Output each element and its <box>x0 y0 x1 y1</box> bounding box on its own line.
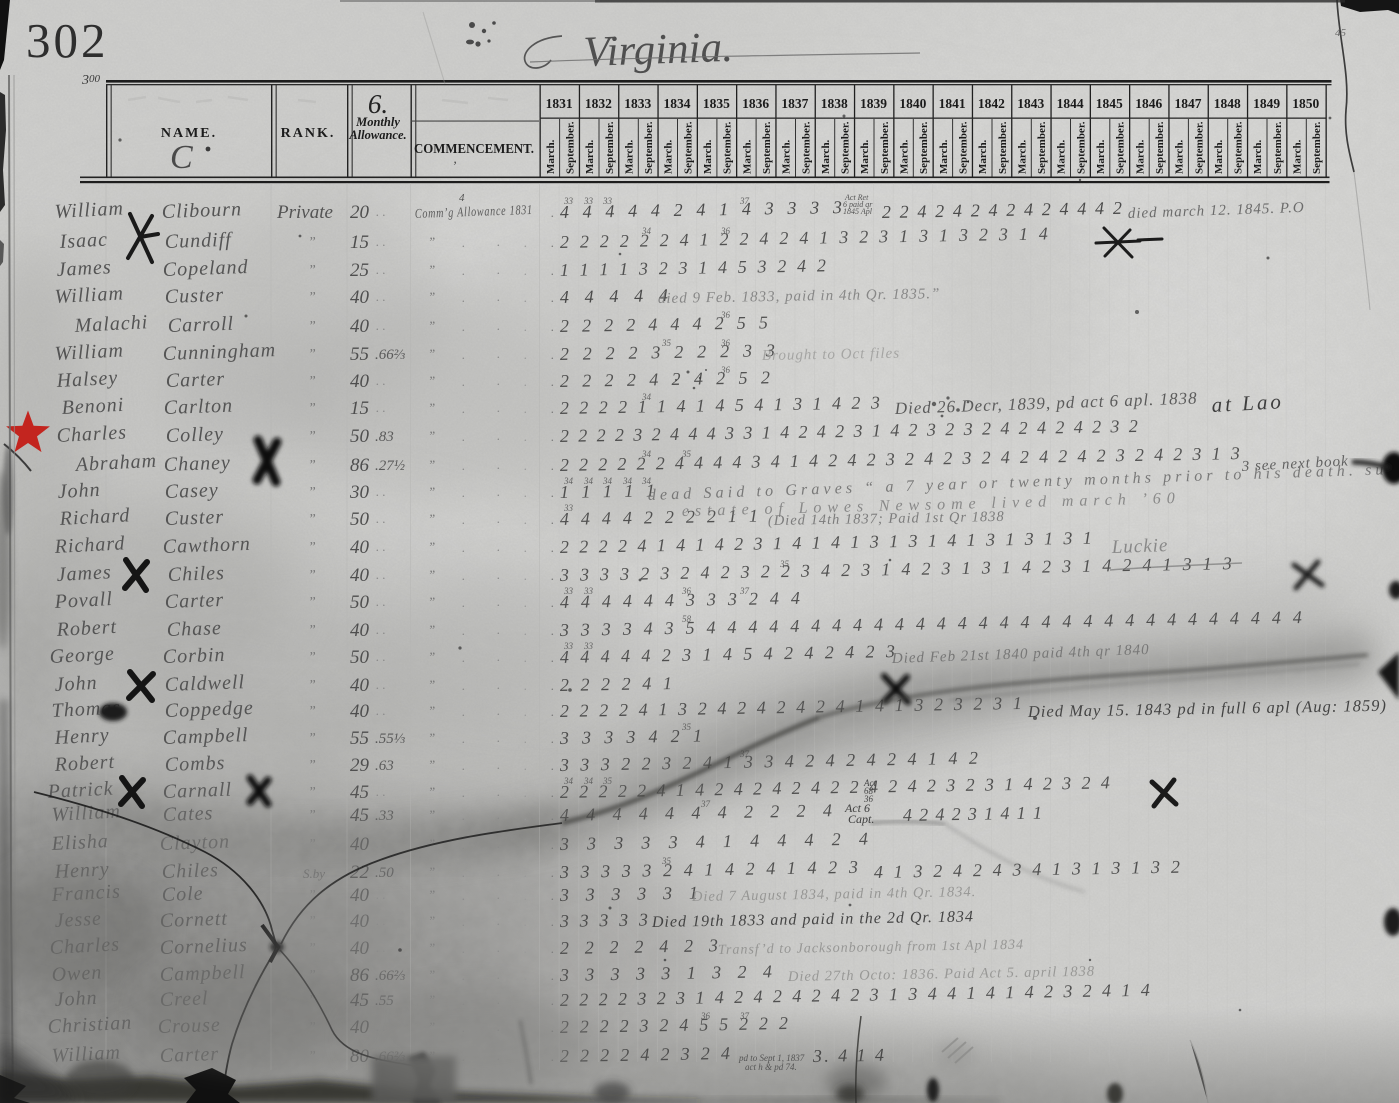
svg-text:.: . <box>497 373 500 388</box>
svg-text:.: . <box>462 429 465 444</box>
svg-text:Halsey: Halsey <box>55 367 119 392</box>
svg-text:.: . <box>462 347 465 362</box>
svg-text:.: . <box>462 458 465 473</box>
svg-text:Luckie: Luckie <box>1110 535 1168 558</box>
svg-text:John: John <box>57 479 101 503</box>
svg-text:50: 50 <box>350 509 370 530</box>
svg-text:.: . <box>462 540 465 555</box>
svg-text:RANK.: RANK. <box>281 126 336 141</box>
svg-text:at Lao: at Lao <box>1211 389 1284 417</box>
svg-text:34: 34 <box>622 476 633 486</box>
svg-text:.: . <box>497 346 500 361</box>
svg-text:”: ” <box>428 457 435 472</box>
svg-text:.: . <box>551 458 554 473</box>
svg-text:.: . <box>462 374 465 389</box>
svg-text:34: 34 <box>641 226 652 236</box>
svg-text:March.: March. <box>938 139 950 174</box>
svg-text:.: . <box>551 429 554 444</box>
svg-text:40: 40 <box>350 316 370 337</box>
svg-text:4: 4 <box>459 192 465 204</box>
svg-text:2 2 4 2 4 2 4 2 4 2 4 4 4 2: 2 2 4 2 4 2 4 2 4 2 4 4 4 2 <box>882 198 1122 222</box>
svg-text:March.: March. <box>702 139 714 174</box>
svg-text:March.: March. <box>1213 139 1225 174</box>
svg-text:1840: 1840 <box>899 96 926 111</box>
svg-text:September.: September. <box>682 121 694 174</box>
svg-text:.: . <box>462 401 465 416</box>
svg-text:. .: . . <box>376 373 386 388</box>
svg-text:September.: September. <box>722 121 734 174</box>
svg-text:”: ” <box>428 373 435 388</box>
svg-text:September.: September. <box>565 121 577 174</box>
svg-text:Allowance.: Allowance. <box>348 128 406 142</box>
svg-text:March.: March. <box>1292 139 1304 174</box>
svg-text:35: 35 <box>681 449 692 459</box>
svg-text:”: ” <box>308 540 316 555</box>
svg-text:.: . <box>462 263 465 278</box>
svg-text:.: . <box>524 401 527 416</box>
svg-text:September.: September. <box>1233 121 1245 174</box>
svg-text:”: ” <box>428 234 435 249</box>
svg-text:1847: 1847 <box>1175 96 1202 111</box>
svg-text:March.: March. <box>1174 139 1186 174</box>
svg-text:Carroll: Carroll <box>167 313 234 337</box>
svg-text:4 4 4 4 4: 4 4 4 4 4 <box>560 285 668 307</box>
svg-text:”: ” <box>428 400 435 415</box>
svg-text:”: ” <box>308 263 316 278</box>
svg-text:Abraham: Abraham <box>73 450 157 476</box>
svg-text:1841: 1841 <box>939 96 966 111</box>
svg-text:.: . <box>551 485 554 500</box>
svg-text:. .: . . <box>376 234 386 249</box>
svg-text:”: ” <box>308 458 316 473</box>
svg-text:Malachi: Malachi <box>73 311 149 337</box>
svg-text:15: 15 <box>350 232 369 253</box>
svg-text:September.: September. <box>1115 121 1127 174</box>
svg-text:March.: March. <box>1056 139 1068 174</box>
svg-text:1846: 1846 <box>1135 96 1162 111</box>
svg-text:William: William <box>54 339 124 365</box>
svg-text:Richard: Richard <box>58 504 131 530</box>
svg-text:. .: . . <box>376 400 386 415</box>
svg-text:Custer: Custer <box>164 506 224 530</box>
svg-text:20: 20 <box>350 202 370 223</box>
svg-text:.: . <box>497 428 500 443</box>
svg-text:.: . <box>551 374 554 389</box>
svg-text:302: 302 <box>26 13 109 68</box>
svg-text:Colley: Colley <box>165 423 224 447</box>
svg-text:.: . <box>462 319 465 334</box>
svg-text:September.: September. <box>958 121 970 174</box>
svg-text:September.: September. <box>1311 121 1323 174</box>
svg-text:September.: September. <box>643 121 655 174</box>
svg-text:33: 33 <box>563 196 574 206</box>
svg-text:4 4 4 4 2 2 2 2 1 1: 4 4 4 4 2 2 2 2 1 1 <box>560 506 758 529</box>
svg-text:. .: . . <box>376 318 386 333</box>
svg-text:34: 34 <box>641 392 652 402</box>
svg-text:”: ” <box>308 290 316 305</box>
svg-text:1832: 1832 <box>585 96 612 111</box>
svg-text:.: . <box>551 347 554 362</box>
svg-text:. .: . . <box>376 204 386 219</box>
svg-text:Copeland: Copeland <box>162 256 248 281</box>
svg-text:1842: 1842 <box>978 96 1005 111</box>
svg-text:”: ” <box>428 346 435 361</box>
svg-text:34: 34 <box>583 476 594 486</box>
svg-text:.: . <box>524 512 527 527</box>
svg-text:September.: September. <box>918 121 930 174</box>
svg-text:1844: 1844 <box>1057 96 1084 111</box>
svg-text:. .: . . <box>376 484 386 499</box>
svg-text:30: 30 <box>349 482 370 503</box>
svg-text:.: . <box>524 540 527 555</box>
svg-text:September.: September. <box>1154 121 1166 174</box>
svg-text:55: 55 <box>350 344 369 365</box>
svg-text:March.: March. <box>663 139 675 174</box>
svg-text:.: . <box>462 235 465 250</box>
svg-text:September.: September. <box>1193 121 1205 174</box>
svg-text:.: . <box>551 540 554 555</box>
svg-text:.: . <box>462 485 465 500</box>
svg-text:Private: Private <box>276 202 333 223</box>
svg-text:”: ” <box>308 401 316 416</box>
svg-text:Clibourn: Clibourn <box>161 198 242 223</box>
svg-text:. .: . . <box>376 289 386 304</box>
svg-text:Benoni: Benoni <box>61 394 125 419</box>
svg-text:. .: . . <box>376 511 386 526</box>
svg-text:33: 33 <box>563 503 574 513</box>
svg-text:36: 36 <box>720 365 731 375</box>
svg-text:March.: March. <box>859 139 871 174</box>
svg-text:.: . <box>497 400 500 415</box>
svg-text:. .: . . <box>376 539 386 554</box>
svg-text:33: 33 <box>602 196 613 206</box>
svg-text:Act 6Capt.: Act 6Capt. <box>844 801 874 826</box>
svg-text:.: . <box>497 289 500 304</box>
svg-text:1834: 1834 <box>664 96 691 111</box>
svg-text:”: ” <box>428 428 435 443</box>
svg-text:September.: September. <box>1075 121 1087 174</box>
svg-text:March.: March. <box>623 139 635 174</box>
svg-text:.: . <box>551 290 554 305</box>
svg-text:”: ” <box>308 235 316 250</box>
svg-text:. .: . . <box>376 262 386 277</box>
svg-text:”: ” <box>428 262 435 277</box>
svg-text:.: . <box>551 205 554 220</box>
svg-text:.: . <box>551 235 554 250</box>
svg-text:.: . <box>497 318 500 333</box>
svg-text:1831: 1831 <box>546 96 573 111</box>
svg-text:.: . <box>462 512 465 527</box>
svg-text:James: James <box>56 256 112 281</box>
svg-text:September.: September. <box>840 121 852 174</box>
svg-text:March.: March. <box>741 139 753 174</box>
svg-text:45: 45 <box>1335 27 1347 39</box>
svg-text:”: ” <box>428 511 435 526</box>
svg-text:1845: 1845 <box>1096 96 1123 111</box>
svg-text:.: . <box>497 511 500 526</box>
svg-text:Virginia.: Virginia. <box>583 24 734 76</box>
svg-text:Chaney: Chaney <box>163 452 231 476</box>
svg-text:Casey: Casey <box>164 479 219 503</box>
svg-text:.: . <box>524 319 527 334</box>
svg-text:25: 25 <box>350 260 369 281</box>
svg-text:”: ” <box>308 347 316 362</box>
svg-text:March.: March. <box>1095 139 1107 174</box>
svg-text:1839: 1839 <box>860 96 887 111</box>
svg-text:1837: 1837 <box>781 96 808 111</box>
svg-text:.: . <box>524 235 527 250</box>
svg-text:86: 86 <box>350 455 370 476</box>
svg-text:Cawthorn: Cawthorn <box>162 533 251 558</box>
svg-text:.: . <box>524 485 527 500</box>
svg-text:1848: 1848 <box>1214 96 1241 111</box>
svg-text:”: ” <box>308 512 316 527</box>
svg-text:September.: September. <box>604 121 616 174</box>
svg-text:.: . <box>462 290 465 305</box>
svg-text:September.: September. <box>1272 121 1284 174</box>
svg-text:”: ” <box>308 374 316 389</box>
svg-text:September.: September. <box>761 121 773 174</box>
svg-text:Cundiff: Cundiff <box>164 229 233 253</box>
svg-text:37: 37 <box>739 196 750 206</box>
svg-text:34: 34 <box>602 476 613 486</box>
svg-text:William: William <box>54 197 124 223</box>
svg-text:Monthly: Monthly <box>355 115 400 129</box>
svg-text:1843: 1843 <box>1017 96 1044 111</box>
svg-text:1850: 1850 <box>1292 96 1319 111</box>
svg-text:Carlton: Carlton <box>163 395 233 419</box>
svg-text:”: ” <box>308 319 316 334</box>
svg-text:.: . <box>524 458 527 473</box>
svg-text:’: ’ <box>452 158 456 173</box>
svg-text:36: 36 <box>720 338 731 348</box>
svg-text:September.: September. <box>1036 121 1048 174</box>
svg-text:September.: September. <box>879 121 891 174</box>
svg-text:March.: March. <box>781 139 793 174</box>
svg-text:.: . <box>497 484 500 499</box>
svg-text:40: 40 <box>350 287 370 308</box>
svg-text:35: 35 <box>661 338 672 348</box>
svg-text:William: William <box>54 282 124 308</box>
svg-text:1849: 1849 <box>1253 96 1280 111</box>
svg-text:Custer: Custer <box>164 284 224 308</box>
svg-text:March.: March. <box>584 139 596 174</box>
svg-text:.: . <box>524 290 527 305</box>
svg-text:36: 36 <box>720 226 731 236</box>
svg-text:”: ” <box>308 429 316 444</box>
svg-text:.: . <box>497 262 500 277</box>
svg-text:.: . <box>497 457 500 472</box>
svg-text:.: . <box>551 319 554 334</box>
svg-text:.: . <box>524 429 527 444</box>
svg-text:Carter: Carter <box>165 368 225 392</box>
svg-text:15: 15 <box>350 398 369 419</box>
svg-text:Charles: Charles <box>56 421 127 447</box>
svg-text:Cunningham: Cunningham <box>162 339 276 365</box>
svg-text:September.: September. <box>800 121 812 174</box>
svg-text:.: . <box>524 347 527 362</box>
svg-text:.: . <box>497 234 500 249</box>
svg-text:1836: 1836 <box>742 96 769 111</box>
svg-text:”: ” <box>428 289 435 304</box>
svg-text:1835: 1835 <box>703 96 730 111</box>
svg-text:”: ” <box>428 484 435 499</box>
svg-text:1838: 1838 <box>821 96 848 111</box>
svg-text:COMMENCEMENT.: COMMENCEMENT. <box>414 141 534 156</box>
svg-text:Isaac: Isaac <box>58 228 108 253</box>
svg-text:.27½: .27½ <box>375 458 405 474</box>
svg-text:C: C <box>170 139 193 176</box>
svg-text:.: . <box>551 512 554 527</box>
svg-text:.83: .83 <box>375 429 394 445</box>
svg-text:September.: September. <box>997 121 1009 174</box>
svg-text:March.: March. <box>977 139 989 174</box>
svg-text:34: 34 <box>563 476 574 486</box>
svg-text:36: 36 <box>720 310 731 320</box>
svg-text:1833: 1833 <box>624 96 651 111</box>
svg-text:March.: March. <box>1016 139 1028 174</box>
svg-text:March.: March. <box>899 139 911 174</box>
svg-text:.: . <box>551 401 554 416</box>
svg-text:Brought to Oct files: Brought to Oct files <box>762 346 900 364</box>
svg-text:40: 40 <box>350 371 370 392</box>
svg-text:”: ” <box>428 318 435 333</box>
svg-text:.66⅔: .66⅔ <box>375 347 406 363</box>
svg-text:34: 34 <box>641 449 652 459</box>
svg-text:March.: March. <box>820 139 832 174</box>
svg-text:50: 50 <box>350 426 370 447</box>
svg-text:March.: March. <box>1134 139 1146 174</box>
svg-text:March.: March. <box>545 139 557 174</box>
svg-text:33: 33 <box>583 196 594 206</box>
svg-text:”: ” <box>428 539 435 554</box>
svg-text:.: . <box>524 374 527 389</box>
svg-text:.: . <box>497 539 500 554</box>
svg-text:March.: March. <box>1252 139 1264 174</box>
svg-text:”: ” <box>308 485 316 500</box>
svg-text:40: 40 <box>350 537 370 558</box>
svg-text:Richard: Richard <box>53 532 126 558</box>
svg-text:.: . <box>524 263 527 278</box>
svg-text:.: . <box>551 263 554 278</box>
svg-text:34: 34 <box>641 476 652 486</box>
